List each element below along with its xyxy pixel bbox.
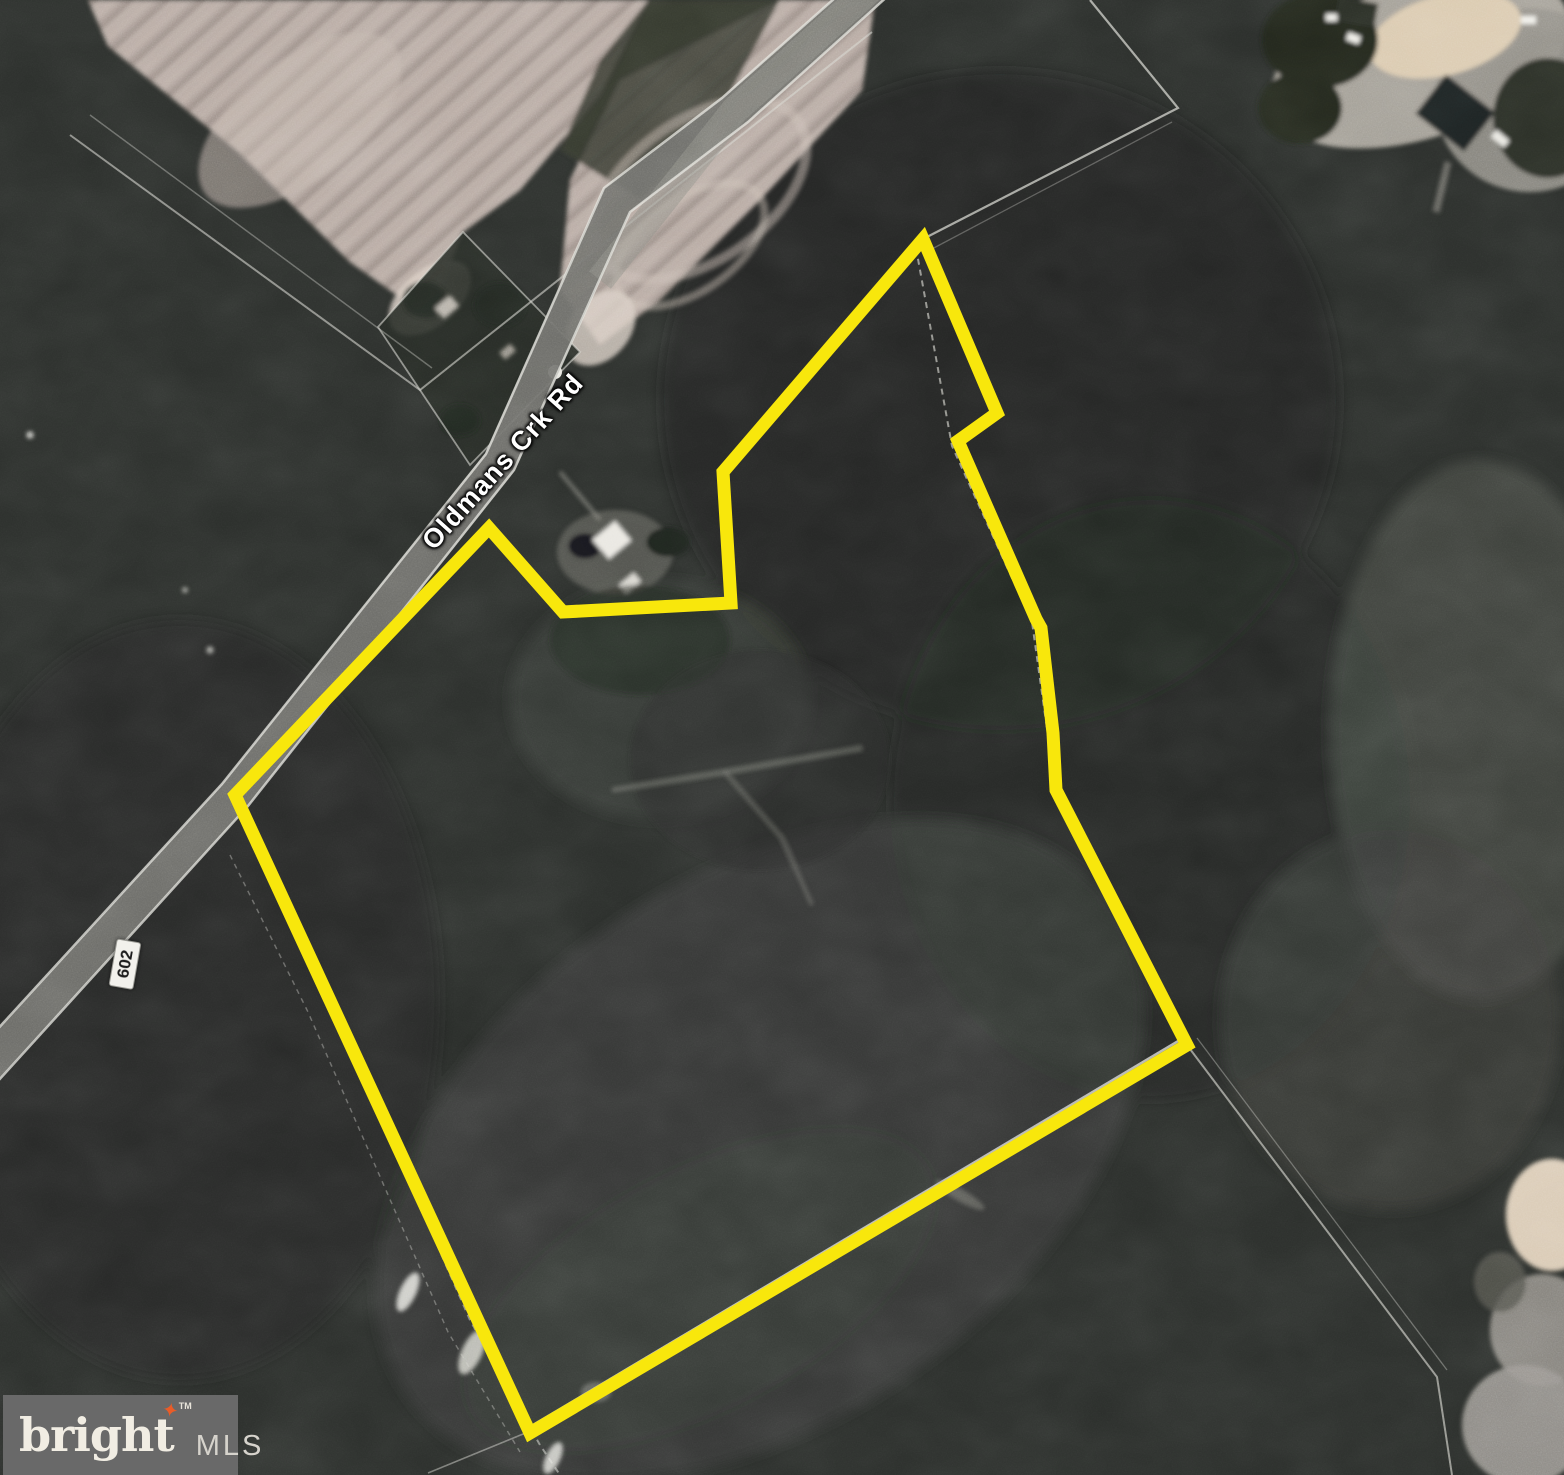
- star-icon: ✦: [160, 1399, 179, 1421]
- brightmls-watermark: bright ✦ TM MLS: [3, 1395, 238, 1475]
- aerial-imagery: [0, 0, 1564, 1475]
- trademark-symbol: TM: [179, 1402, 192, 1411]
- mls-text: MLS: [196, 1432, 265, 1461]
- brand-text: bright: [19, 1408, 174, 1462]
- photo-grain: [0, 0, 1564, 1475]
- brightmls-wordmark: bright ✦ TM: [19, 1412, 174, 1458]
- satellite-map: Oldmans Crk Rd 602 bright ✦ TM MLS: [0, 0, 1564, 1475]
